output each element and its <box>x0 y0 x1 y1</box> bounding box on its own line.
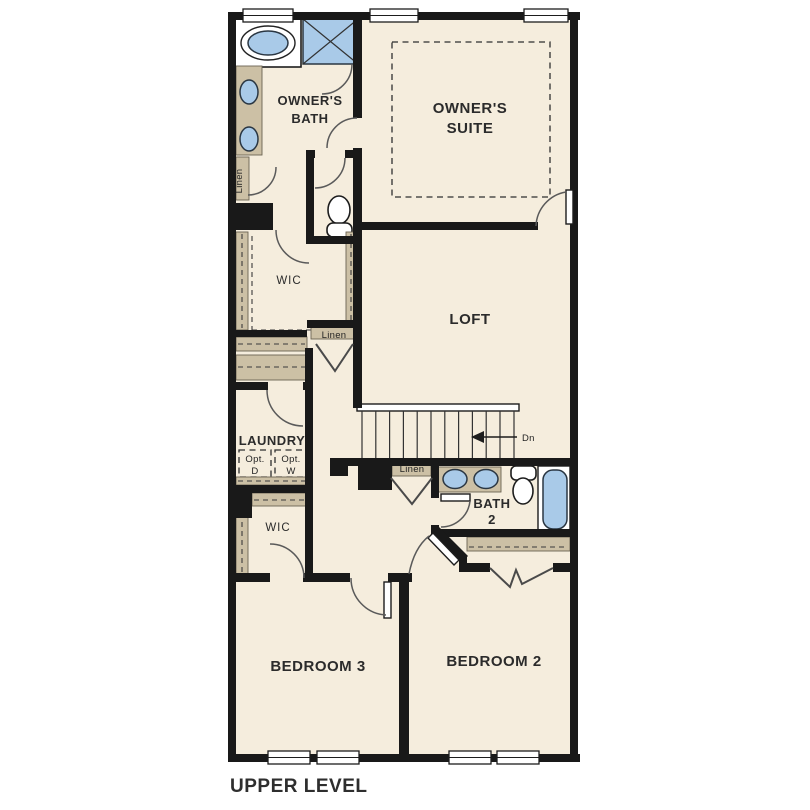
room-label-wic-owners: WIC <box>276 275 301 287</box>
room-label-owners-suite-line2: SUITE <box>447 120 494 137</box>
closet-shelf <box>467 537 570 551</box>
stairs-down-label: Dn <box>522 433 535 444</box>
room-label-loft: LOFT <box>449 311 490 328</box>
room-label-bath2-line2: 2 <box>488 512 496 527</box>
bathtub-icon <box>543 470 567 529</box>
room-label-owners-bath-line1: OWNER'S <box>277 93 342 108</box>
sink-icon <box>240 127 258 151</box>
plan-title: UPPER LEVEL <box>230 776 367 797</box>
room-label-wic-bedroom3: WIC <box>265 522 290 534</box>
opt-dryer-line1: Opt. <box>245 454 264 465</box>
window <box>524 9 568 22</box>
toilet-icon <box>328 196 350 224</box>
room-label-owners-bath-line2: BATH <box>291 111 328 126</box>
toilet-icon <box>513 478 533 504</box>
bedroom3-door-leaf <box>384 582 391 618</box>
opt-washer-line1: Opt. <box>281 454 300 465</box>
window <box>317 751 359 764</box>
sink-icon <box>474 470 498 489</box>
soaking-tub-water <box>248 31 288 55</box>
room-label-bath2-line1: BATH <box>473 496 510 511</box>
owners-suite-door-leaf <box>566 190 573 224</box>
closet-label-linen-owners-bath: Linen <box>234 169 245 194</box>
closet-label-linen-under-stairs: Linen <box>400 464 425 475</box>
room-label-bedroom2: BEDROOM 2 <box>446 653 541 670</box>
room-label-bedroom3: BEDROOM 3 <box>270 658 365 675</box>
opt-dryer-line2: D <box>251 466 258 477</box>
window <box>449 751 491 764</box>
bedroom2-closet <box>467 537 570 551</box>
room-label-owners-suite-line1: OWNER'S <box>433 100 508 117</box>
bath2-door-leaf <box>441 494 470 501</box>
floor-plan: OWNER'S BATH OWNER'S SUITE WIC LOFT LAUN… <box>0 0 810 810</box>
opt-washer-line2: W <box>286 466 295 477</box>
window <box>268 751 310 764</box>
closet-label-linen-hall: Linen <box>322 330 347 341</box>
window <box>497 751 539 764</box>
sink-icon <box>240 80 258 104</box>
room-label-laundry: LAUNDRY <box>239 433 306 448</box>
closet-shelf <box>252 493 307 506</box>
floor-plan-page: OWNER'S BATH OWNER'S SUITE WIC LOFT LAUN… <box>0 0 810 810</box>
window <box>370 9 418 22</box>
window <box>243 9 293 22</box>
sink-icon <box>443 470 467 489</box>
stair-rail <box>357 404 519 411</box>
laundry-counter <box>236 477 308 485</box>
